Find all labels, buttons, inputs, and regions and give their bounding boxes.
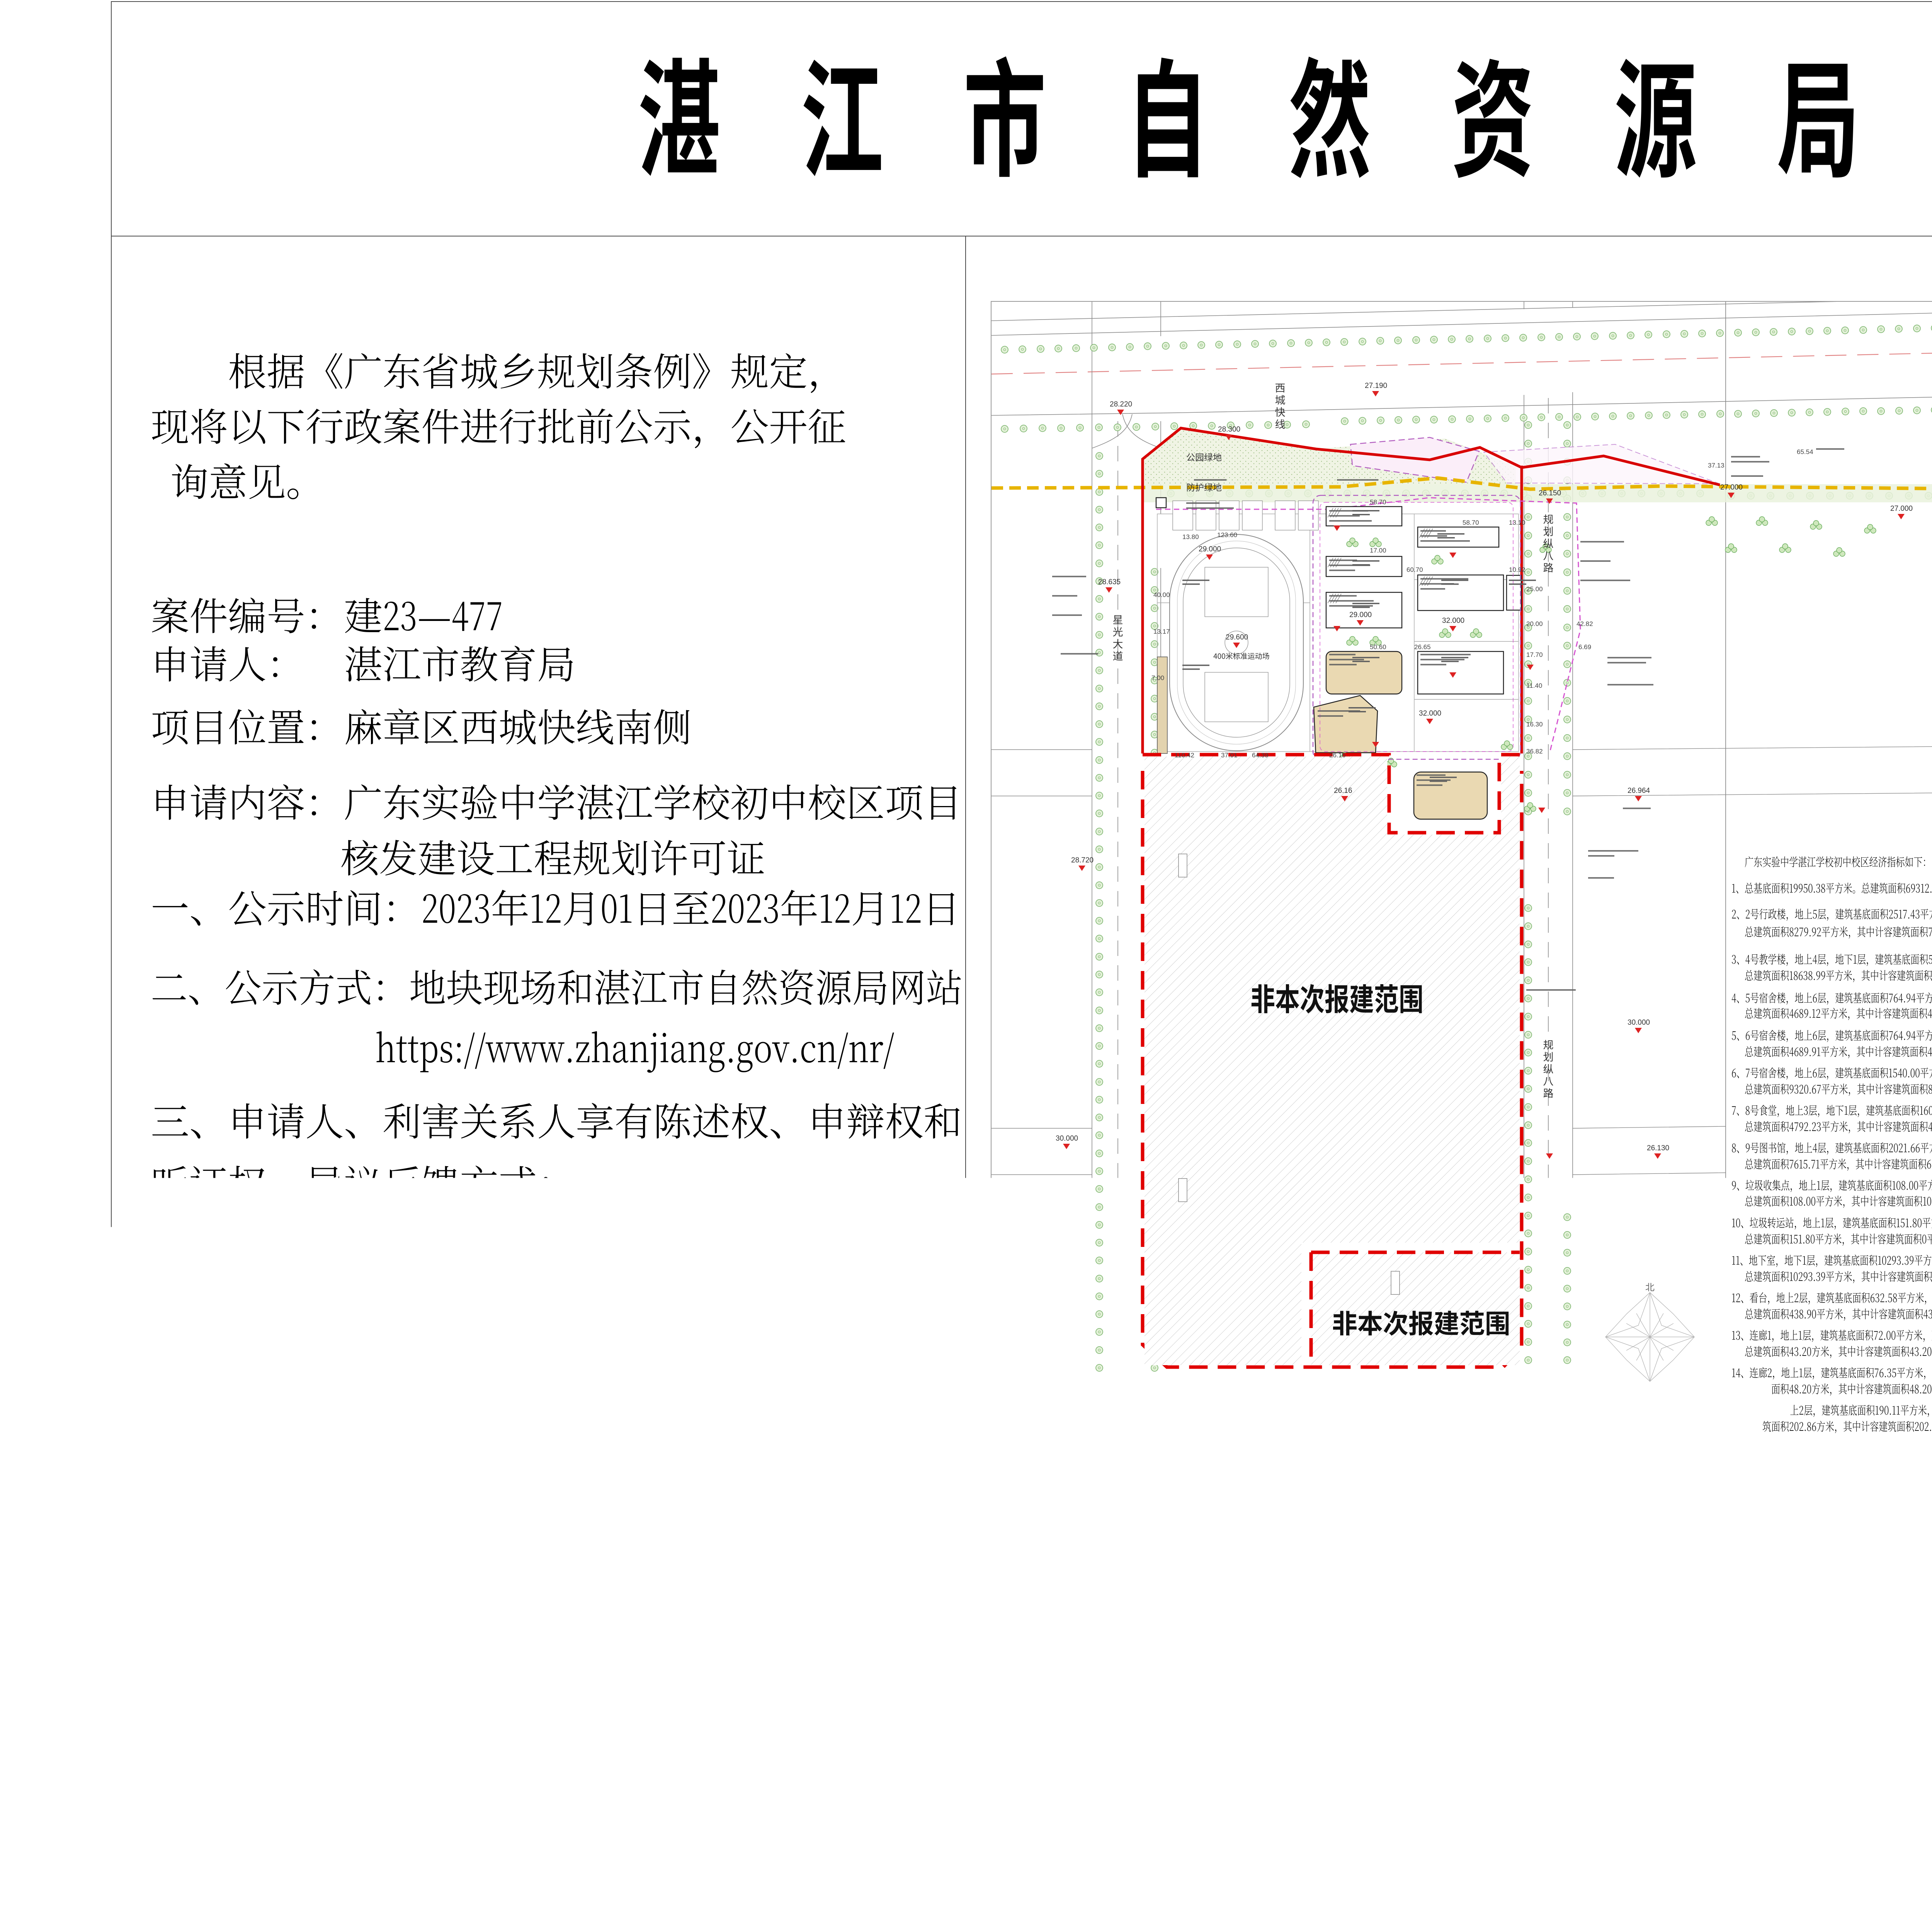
- svg-text:26.65: 26.65: [1414, 643, 1431, 651]
- svg-text:30.000: 30.000: [1056, 1134, 1078, 1143]
- svg-text:29.000: 29.000: [1349, 611, 1372, 619]
- svg-text:28.635: 28.635: [1098, 578, 1121, 586]
- svg-text:10: 10: [1599, 1390, 1608, 1400]
- svg-text:29.600: 29.600: [1226, 633, 1248, 641]
- svg-text:13.80: 13.80: [1182, 533, 1199, 541]
- svg-text:11.40: 11.40: [1526, 682, 1542, 689]
- svg-text:50.60: 50.60: [1370, 643, 1386, 651]
- svg-text:6.69: 6.69: [1578, 643, 1591, 651]
- svg-text:50: 50: [1650, 1390, 1659, 1400]
- svg-text:30.000: 30.000: [1628, 1019, 1650, 1027]
- svg-text:26.16: 26.16: [1334, 787, 1352, 795]
- svg-text:13.17: 13.17: [1153, 628, 1170, 635]
- svg-text:26.150: 26.150: [1539, 489, 1561, 497]
- svg-text:0: 0: [1586, 1390, 1591, 1400]
- svg-text:26.130: 26.130: [1647, 1144, 1669, 1152]
- svg-text:28.720: 28.720: [1071, 856, 1094, 864]
- svg-text:32.000: 32.000: [1419, 709, 1441, 718]
- svg-text:7.00: 7.00: [1151, 674, 1164, 682]
- svg-text:40.00: 40.00: [1153, 591, 1170, 599]
- svg-text:37.13: 37.13: [1708, 462, 1725, 469]
- svg-text:37.01: 37.01: [1221, 752, 1238, 759]
- svg-text:110.42: 110.42: [1175, 752, 1194, 759]
- svg-text:17.70: 17.70: [1526, 651, 1543, 658]
- svg-text:123.60: 123.60: [1217, 531, 1237, 539]
- svg-text:28.300: 28.300: [1218, 425, 1240, 434]
- svg-text:29.003: 29.003: [1604, 1262, 1627, 1270]
- svg-text:60.70: 60.70: [1406, 566, 1423, 573]
- svg-text:42.82: 42.82: [1577, 620, 1593, 628]
- svg-text:58.70: 58.70: [1463, 519, 1479, 526]
- svg-text:30: 30: [1624, 1390, 1633, 1400]
- svg-text:10.92: 10.92: [1509, 566, 1526, 573]
- svg-text:36.82: 36.82: [1526, 748, 1543, 755]
- svg-text:28.220: 28.220: [1110, 400, 1132, 408]
- svg-text:29.000: 29.000: [1199, 545, 1221, 553]
- svg-text:32.000: 32.000: [1442, 617, 1464, 625]
- svg-text:27.000: 27.000: [1720, 483, 1743, 492]
- svg-text:25.00: 25.00: [1526, 585, 1543, 593]
- svg-text:26.964: 26.964: [1628, 787, 1650, 795]
- svg-text:26.16: 26.16: [1329, 752, 1346, 759]
- svg-text:17.00: 17.00: [1370, 547, 1386, 554]
- svg-text:29.341: 29.341: [1624, 1316, 1646, 1324]
- svg-text:13.10: 13.10: [1509, 519, 1526, 526]
- svg-text:20.00: 20.00: [1526, 620, 1543, 628]
- svg-text:16.30: 16.30: [1526, 721, 1543, 728]
- svg-text:58.70: 58.70: [1370, 498, 1386, 506]
- svg-text:27.190: 27.190: [1365, 382, 1387, 390]
- svg-text:64.39: 64.39: [1252, 752, 1269, 759]
- svg-text:27.000: 27.000: [1890, 505, 1913, 513]
- svg-text:65.54: 65.54: [1797, 448, 1813, 456]
- svg-text:100m: 100m: [1708, 1390, 1730, 1400]
